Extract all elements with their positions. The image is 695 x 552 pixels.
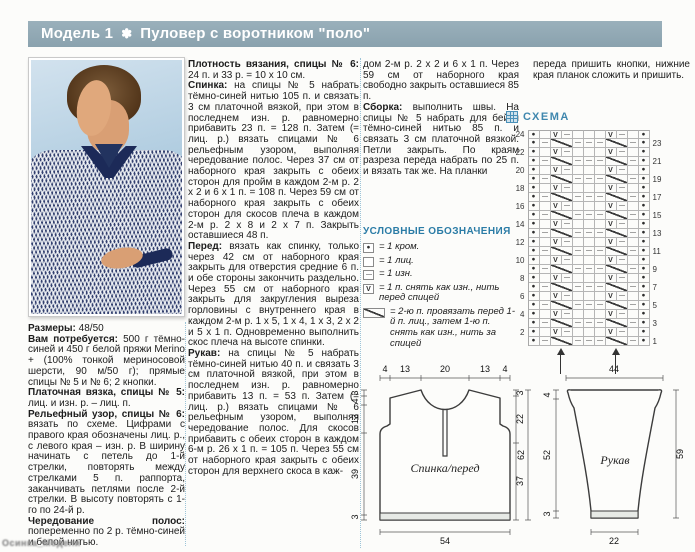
chart-cell-e (540, 202, 551, 211)
chart-cell-v: V (551, 292, 562, 301)
chart-cell-p: — (562, 184, 573, 193)
chart-row: 2●V—V—● (512, 328, 665, 337)
instructions-column-right: дом 2-м р. 2 х 2 и 6 х 1 п. Через 59 см … (363, 60, 519, 178)
chart-row: 20●V—V—● (512, 166, 665, 175)
chart-cell-p: — (595, 283, 606, 292)
chart-cell-e (573, 238, 584, 247)
chart-cell-k: ● (639, 301, 650, 310)
chart-cell-v: V (606, 148, 617, 157)
chart-cell-e (584, 184, 595, 193)
chart-cell-k: ● (529, 337, 540, 346)
chart-cell-v: V (551, 166, 562, 175)
model-number: Модель 1 (41, 25, 113, 42)
chart-cell-p: — (540, 139, 551, 148)
dim: 13 (480, 364, 490, 374)
chart-cell-p: — (562, 256, 573, 265)
chart-cell-k: ● (639, 184, 650, 193)
chart-cell-e (628, 274, 639, 283)
chart-cell-s (606, 265, 628, 274)
row-number-right (650, 256, 666, 265)
chart-cell-v: V (551, 274, 562, 283)
chart-cell-p: — (584, 157, 595, 166)
legend-item: ●= 1 кром. (363, 242, 520, 253)
row-number-left: 22 (512, 148, 528, 157)
chart-cell-v: V (606, 220, 617, 229)
chart-cell-s (606, 283, 628, 292)
chart-cell-e (628, 310, 639, 319)
row-number-right (650, 292, 666, 301)
chart-cell-s (551, 211, 573, 220)
chart-cell-v: V (551, 202, 562, 211)
chart-cell-e (584, 148, 595, 157)
chart-cell-e (628, 166, 639, 175)
chart-cell-v: V (551, 148, 562, 157)
chart-cell-p: — (573, 265, 584, 274)
model-photo (28, 57, 185, 317)
chart-cell-p: — (617, 310, 628, 319)
chart-cell-p: — (628, 247, 639, 256)
legend-item-text: = 2-ю п. провязать перед 1-й п. лиц., за… (390, 307, 520, 350)
grid-icon (506, 111, 518, 123)
chart-cell-s (606, 319, 628, 328)
chart-cell-k: ● (529, 310, 540, 319)
chart-cell-v: V (551, 220, 562, 229)
chart-cell-p: — (584, 283, 595, 292)
chart-cell-k: ● (529, 265, 540, 274)
paragraph: Перед: вязать как спинку, только через 4… (188, 242, 359, 349)
chart-cell-e (628, 256, 639, 265)
instructions-column-middle: Плотность вязания, спицы № 6: 24 п. и 33… (188, 60, 359, 477)
chart-cell-k: ● (639, 157, 650, 166)
chart-cell-e (584, 220, 595, 229)
chart-row: 16●V—V—● (512, 202, 665, 211)
chart-cell-e (584, 274, 595, 283)
chart-row: ●—————●3 (512, 319, 665, 328)
chart-cell-k: ● (639, 175, 650, 184)
chart-cell-e (628, 292, 639, 301)
chart-cell-v: V (551, 328, 562, 337)
chart-cell-p: — (584, 301, 595, 310)
row-number-right: 21 (650, 157, 666, 166)
dim: 13 (400, 364, 410, 374)
legend-item: —= 1 изн. (363, 269, 520, 280)
chart-cell-k: ● (529, 148, 540, 157)
dim: 4 (350, 398, 360, 403)
chart-cell-p: — (617, 256, 628, 265)
paragraph: Рукав: на спицы № 5 набрать тёмно-синей … (188, 349, 359, 477)
chart-cell-k: ● (529, 301, 540, 310)
chart-cell-e (595, 130, 606, 139)
chart-cell-p: — (573, 139, 584, 148)
chart-cell-p: — (540, 265, 551, 274)
dim: 44 (609, 364, 619, 374)
chart-row: 10●V—V—● (512, 256, 665, 265)
chart-cell-k: ● (529, 229, 540, 238)
chart-cell-k: ● (529, 184, 540, 193)
chart-cell-k: ● (529, 256, 540, 265)
chart-cell-s (551, 229, 573, 238)
chart-cell-p: — (595, 139, 606, 148)
paragraph: Платочная вязка, спицы № 5: лиц. и изн. … (28, 388, 185, 409)
chart-cell-p: — (573, 319, 584, 328)
chart-cell-e (540, 220, 551, 229)
chart-cell-p: — (562, 130, 573, 139)
chart-cell-e (628, 130, 639, 139)
legend-item: = 2-ю п. провязать перед 1-й п. лиц., за… (363, 307, 520, 350)
chart-cell-p: — (595, 337, 606, 346)
chart-row: 24●V—V—● (512, 130, 665, 139)
row-number-right: 5 (650, 301, 666, 310)
row-number-left (512, 139, 528, 148)
chart-cell-p: — (617, 130, 628, 139)
chart-cell-p: — (562, 202, 573, 211)
column-separator (185, 322, 186, 546)
chart-row: ●—————●5 (512, 301, 665, 310)
chart-cell-v: V (606, 238, 617, 247)
chart-cell-k: ● (639, 166, 650, 175)
chart-cell-k: ● (529, 319, 540, 328)
chart-cell-k: ● (529, 292, 540, 301)
row-number-right: 9 (650, 265, 666, 274)
chart-cell-e (573, 148, 584, 157)
chart-cell-p: — (573, 247, 584, 256)
row-number-left: 18 (512, 184, 528, 193)
chart-cell-s (606, 337, 628, 346)
chart-cell-v: V (551, 256, 562, 265)
chart-cell-s (606, 157, 628, 166)
chart-cell-k: ● (529, 274, 540, 283)
row-number-left (512, 157, 528, 166)
chart-cell-k: ● (639, 139, 650, 148)
row-number-right: 17 (650, 193, 666, 202)
row-number-right: 1 (650, 337, 666, 346)
chart-cell-p: — (617, 328, 628, 337)
chart-row: 12●V—V—● (512, 238, 665, 247)
chart-cell-p: — (540, 319, 551, 328)
chart-cell-e (628, 328, 639, 337)
dim: 4 (502, 364, 507, 374)
row-number-left (512, 211, 528, 220)
chart-cell-k: ● (529, 220, 540, 229)
chart-cell-p: — (628, 175, 639, 184)
chart-cell-p: — (617, 166, 628, 175)
schematic-sleeve: Рукав 44 4 52 3 59 22 (540, 360, 692, 550)
chart-cell-s (551, 319, 573, 328)
chart-cell-p: — (628, 337, 639, 346)
chart-cell-e (573, 166, 584, 175)
chart-cell-k: ● (529, 157, 540, 166)
chart-cell-e (540, 238, 551, 247)
chart-cell-p: — (617, 220, 628, 229)
chart-cell-p: — (562, 238, 573, 247)
chart-cell-e (595, 202, 606, 211)
chart-cell-k: ● (529, 283, 540, 292)
chart-cell-p: — (584, 211, 595, 220)
legend-items: ●= 1 кром.= 1 лиц.—= 1 изн.V= 1 п. снять… (363, 242, 520, 350)
chart-cell-s (363, 308, 385, 318)
chart-cell-e (628, 184, 639, 193)
chart-cell-v: V (606, 130, 617, 139)
chart-cell-p: — (573, 175, 584, 184)
chart-cell-e (628, 148, 639, 157)
symbol-legend: УСЛОВНЫЕ ОБОЗНАЧЕНИЯ ●= 1 кром.= 1 лиц.—… (363, 226, 520, 352)
paragraph: Сборка: выполнить швы. На спицы № 5 набр… (363, 103, 519, 178)
chart-row: ●—————●19 (512, 175, 665, 184)
chart-cell-p: — (584, 193, 595, 202)
chart-cell-e (595, 166, 606, 175)
chart-cell-e (595, 238, 606, 247)
chart-cell-k: ● (529, 247, 540, 256)
chart-cell-p: — (617, 184, 628, 193)
chart-cell-v: V (606, 184, 617, 193)
instructions-column-far-right: переда пришить кнопки, нижние края плано… (533, 60, 690, 81)
chart-cell-v: V (606, 310, 617, 319)
chart-cell-k: ● (529, 211, 540, 220)
chart-row: ●—————●15 (512, 211, 665, 220)
chart-cell-s (606, 301, 628, 310)
chart-cell-p: — (617, 238, 628, 247)
row-number-right (650, 148, 666, 157)
legend-item: = 1 лиц. (363, 256, 520, 267)
knitting-chart: 24●V—V—●●—————●2322●V—V—●●—————●2120●V—V… (512, 130, 665, 346)
chart-cell-e (573, 310, 584, 319)
chart-cell-k: ● (529, 328, 540, 337)
chart-cell-p: — (595, 193, 606, 202)
chart-cell-s (551, 139, 573, 148)
row-number-left: 24 (512, 130, 528, 139)
chart-cell-p: — (540, 175, 551, 184)
chart-cell-e (540, 148, 551, 157)
chart-cell-p: — (595, 229, 606, 238)
chart-cell-e (628, 202, 639, 211)
chart-cell-e (628, 220, 639, 229)
dim: 54 (440, 536, 450, 546)
chart-cell-p: — (562, 328, 573, 337)
chart-cell-p: — (363, 270, 374, 280)
chart-row: ●—————●17 (512, 193, 665, 202)
chart-cell-k: ● (639, 202, 650, 211)
chart-cell-e (584, 310, 595, 319)
row-number-left: 16 (512, 202, 528, 211)
chart-cell-p: — (540, 157, 551, 166)
chart-cell-p: — (617, 292, 628, 301)
chart-cell-k: ● (639, 283, 650, 292)
chart-cell-e (573, 256, 584, 265)
dim: 22 (609, 536, 619, 546)
chart-cell-e (573, 184, 584, 193)
chart-cell-e (595, 256, 606, 265)
chart-cell-p: — (562, 148, 573, 157)
photo-background (31, 60, 182, 314)
chart-cell-k: ● (639, 328, 650, 337)
instructions-column-left: Размеры: 48/50Вам потребуется: 500 г тём… (28, 324, 185, 549)
chart-cell-k: ● (639, 238, 650, 247)
row-number-right: 11 (650, 247, 666, 256)
chart-row: ●—————●21 (512, 157, 665, 166)
chart-cell-e (540, 130, 551, 139)
row-number-right (650, 220, 666, 229)
chart-cell-p: — (562, 310, 573, 319)
row-number-right (650, 184, 666, 193)
chart-cell-p: — (540, 229, 551, 238)
chart-cell-p: — (584, 265, 595, 274)
chart-cell-p: — (628, 157, 639, 166)
chart-cell-v: V (606, 328, 617, 337)
chart-cell-e (573, 292, 584, 301)
chart-cell-k: ● (639, 310, 650, 319)
chart-cell-v: V (551, 184, 562, 193)
chart-cell-k: ● (639, 148, 650, 157)
chart-cell-p: — (628, 301, 639, 310)
chart-cell-p: — (584, 229, 595, 238)
chart-cell-s (551, 193, 573, 202)
chart-cell-p: — (562, 274, 573, 283)
row-number-right (650, 328, 666, 337)
chart-cell-e (573, 220, 584, 229)
legend-item-text: = 1 изн. (379, 269, 413, 280)
dim: 59 (675, 449, 685, 459)
chart-cell-p: — (628, 211, 639, 220)
chart-cell-e (584, 202, 595, 211)
chart-row: 14●V—V—● (512, 220, 665, 229)
chart-cell-e (540, 256, 551, 265)
chart-cell-e (584, 292, 595, 301)
chart-cell-e (540, 292, 551, 301)
dim: 22 (515, 414, 525, 424)
dim: 3 (350, 514, 360, 519)
chart-cell-e (584, 238, 595, 247)
chart-cell-p: — (628, 139, 639, 148)
chart-cell-p: — (562, 292, 573, 301)
chart-cell-v: V (606, 166, 617, 175)
chart-cell-p: — (584, 337, 595, 346)
chart-cell-e (595, 184, 606, 193)
chart-cell-v: V (551, 130, 562, 139)
chart-cell-p: — (628, 193, 639, 202)
chart-cell-e (595, 328, 606, 337)
dim: 4 (382, 364, 387, 374)
dim: 37 (515, 476, 525, 486)
chart-cell-e (540, 184, 551, 193)
chart-cell-e (595, 310, 606, 319)
chart-cell-e (573, 274, 584, 283)
row-number-left (512, 175, 528, 184)
chart-cell-e (595, 220, 606, 229)
chart-cell-v: V (363, 284, 374, 294)
row-number-right (650, 310, 666, 319)
row-number-left (512, 193, 528, 202)
chart-cell-k: ● (639, 247, 650, 256)
chart-cell-v: V (606, 256, 617, 265)
chart-cell-k: ● (639, 337, 650, 346)
chart-cell-s (551, 157, 573, 166)
chart-cell-e (573, 130, 584, 139)
chart-cell-k: ● (639, 319, 650, 328)
chart-cell-e (540, 310, 551, 319)
chart-cell-p: — (540, 337, 551, 346)
row-number-right: 7 (650, 283, 666, 292)
dim: 3 (515, 390, 525, 395)
chart-row: 8●V—V—● (512, 274, 665, 283)
chart-cell-k: ● (639, 130, 650, 139)
chart-cell-k: ● (639, 265, 650, 274)
chart-cell-k: ● (639, 211, 650, 220)
chart-cell-e (540, 328, 551, 337)
sleeve-label: Рукав (599, 453, 629, 467)
chart-cell-k: ● (639, 193, 650, 202)
paragraph: Плотность вязания, спицы № 6: 24 п. и 33… (188, 60, 359, 81)
chart-cell-s (606, 193, 628, 202)
schematic-body: Спинка/перед 4 13 20 13 4 54 3 4 13 39 3… (350, 360, 532, 550)
paragraph: Спинка: на спицы № 5 набрать тёмно-синей… (188, 81, 359, 242)
chart-cell-k: ● (529, 193, 540, 202)
chart-cell-e (595, 292, 606, 301)
chart-cell-p: — (617, 202, 628, 211)
chart-cell-k: ● (529, 202, 540, 211)
paragraph: переда пришить кнопки, нижние края плано… (533, 60, 690, 81)
chart-cell-e (540, 166, 551, 175)
row-number-right (650, 202, 666, 211)
chart-cell-p: — (540, 211, 551, 220)
chart-cell-p: — (540, 247, 551, 256)
chart-cell-p: — (617, 274, 628, 283)
watermark: Осинка_Модели (2, 538, 81, 548)
chart-heading: СХЕМА (506, 111, 570, 123)
chart-cell-s (606, 229, 628, 238)
chart-cell-s (551, 265, 573, 274)
chart-cell-p: — (573, 337, 584, 346)
row-number-right: 3 (650, 319, 666, 328)
dim: 13 (350, 414, 360, 424)
star-icon: ✽ (121, 26, 132, 41)
row-number-right (650, 238, 666, 247)
chart-cell-v: V (606, 292, 617, 301)
chart-cell-p: — (573, 229, 584, 238)
chart-cell-p: — (595, 319, 606, 328)
magazine-page: Модель 1✽Пуловер с воротником "поло" Раз… (0, 0, 695, 552)
page-title: Модель 1✽Пуловер с воротником "поло" (28, 21, 662, 47)
chart-cell-k: ● (639, 220, 650, 229)
chart-cell-e (628, 238, 639, 247)
chart-cell-s (551, 283, 573, 292)
legend-title: УСЛОВНЫЕ ОБОЗНАЧЕНИЯ (363, 226, 520, 237)
legend-item: V= 1 п. снять как изн., нить перед спице… (363, 283, 520, 305)
chart-cell-e (573, 202, 584, 211)
row-number-right: 23 (650, 139, 666, 148)
chart-cell-e (363, 257, 374, 267)
chart-cell-p: — (540, 283, 551, 292)
chart-cell-v: V (606, 202, 617, 211)
model-name: Пуловер с воротником "поло" (140, 25, 370, 42)
chart-cell-k: ● (529, 175, 540, 184)
chart-row: ●—————●7 (512, 283, 665, 292)
chart-cell-v: V (551, 310, 562, 319)
chart-cell-p: — (573, 211, 584, 220)
dim: 3 (350, 390, 360, 395)
chart-row: 6●V—V—● (512, 292, 665, 301)
legend-item-text: = 1 лиц. (379, 256, 414, 267)
chart-cell-e (573, 328, 584, 337)
chart-cell-e (584, 328, 595, 337)
chart-title: СХЕМА (523, 111, 570, 123)
chart-row: ●—————●23 (512, 139, 665, 148)
chart-cell-p: — (595, 211, 606, 220)
chart-row: ●—————●11 (512, 247, 665, 256)
chart-cell-k: ● (529, 139, 540, 148)
dim: 52 (542, 450, 552, 460)
legend-item-text: = 1 кром. (379, 242, 419, 253)
chart-cell-p: — (573, 283, 584, 292)
